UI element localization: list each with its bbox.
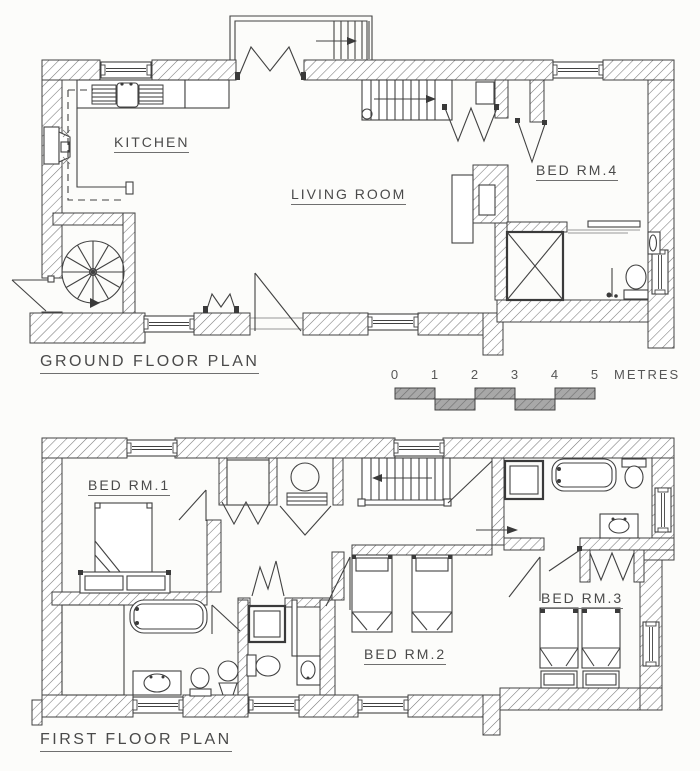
scale-bar	[395, 388, 595, 410]
ground-toilet	[607, 265, 649, 299]
casement-swing-marks	[203, 294, 239, 313]
airing-cupboard	[280, 463, 331, 535]
hall-closet	[222, 460, 270, 524]
scale-tick-1: 1	[425, 367, 445, 382]
scale-tick-5: 5	[585, 367, 605, 382]
ground-basin	[648, 232, 660, 254]
scale-tick-3: 3	[505, 367, 525, 382]
bedrm2-beds	[352, 555, 452, 632]
room-label-bedrm1: BED RM.1	[88, 477, 170, 496]
room-label-bedrm4: BED RM.4	[536, 162, 618, 181]
room-label-bedrm3: BED RM.3	[541, 590, 623, 609]
plan-title-ground-floor: GROUND FLOOR PLAN	[40, 353, 259, 374]
ground-shower-cubicle	[507, 232, 563, 300]
storage-closet	[62, 605, 124, 695]
scale-tick-2: 2	[465, 367, 485, 382]
side-entrance-door	[12, 276, 54, 311]
room-label-bedrm2: BED RM.2	[364, 646, 446, 665]
entrance-french-doors	[235, 47, 306, 80]
fireplace	[452, 175, 495, 243]
kitchen-cooker	[44, 127, 70, 164]
living-room-door	[250, 273, 303, 331]
floor-plan-sheet: KITCHEN LIVING ROOM BED RM.4 GROUND FLOO…	[0, 0, 700, 771]
scale-tick-0: 0	[385, 367, 405, 382]
first-floor-staircase	[358, 458, 492, 506]
bathroom-right-fixtures	[505, 459, 646, 538]
floor-plan-drawing	[0, 0, 700, 771]
kitchen-sink-unit	[77, 80, 229, 108]
porch-canopy	[230, 16, 372, 60]
plan-title-first-floor: FIRST FLOOR PLAN	[40, 731, 232, 752]
wc-room-fixtures	[247, 606, 320, 685]
bedrm3-beds	[540, 608, 620, 688]
spiral-staircase	[62, 241, 124, 308]
bedrm4-shelf	[568, 221, 640, 233]
bedrm1-bed	[78, 503, 171, 593]
room-label-kitchen: KITCHEN	[114, 134, 189, 153]
main-staircase	[362, 80, 452, 120]
porch-steps	[316, 21, 369, 59]
room-label-living-room: LIVING ROOM	[291, 186, 406, 205]
scale-unit-label: METRES	[614, 367, 680, 382]
scale-tick-4: 4	[545, 367, 565, 382]
